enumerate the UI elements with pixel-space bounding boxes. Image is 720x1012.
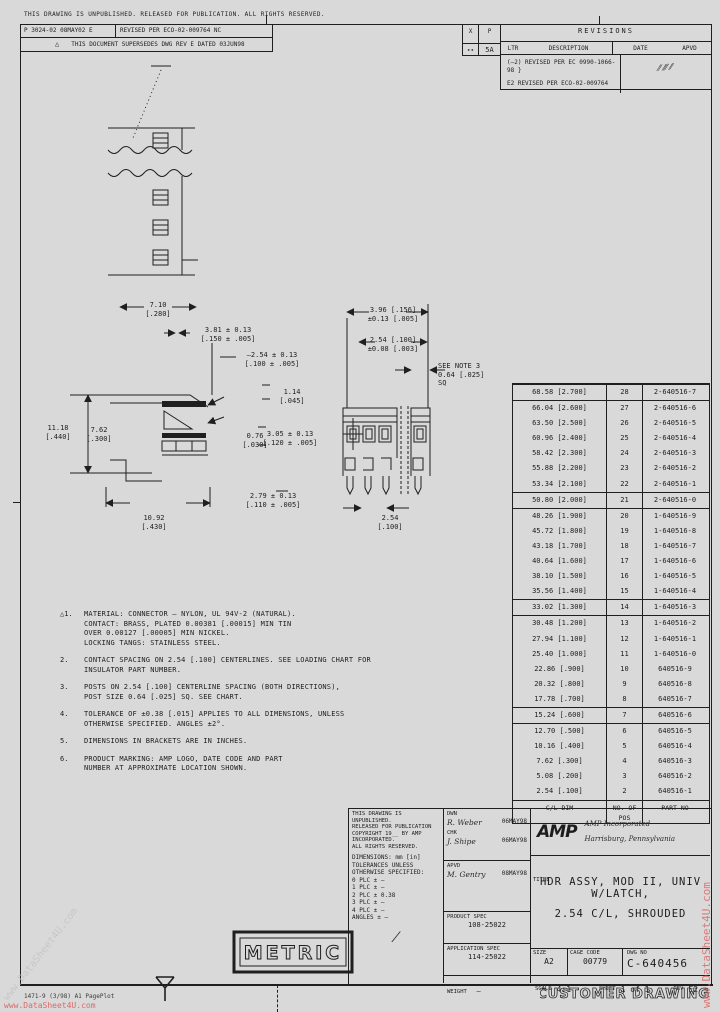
table-row: 22.86 [.900] 10 640516-9	[513, 662, 709, 677]
cell-part-number: 640516-9	[643, 662, 707, 677]
cell-part-number: 640516-7	[643, 692, 707, 707]
dim-label-f2-d7: 11.18 [.440]	[40, 424, 76, 441]
cell-part-number: 1-640516-8	[643, 524, 707, 539]
cell-cl-dim: 20.32 [.800]	[513, 677, 607, 692]
projection-symbol-icon	[152, 974, 178, 1004]
revision-strip-row2: △ THIS DOCUMENT SUPERSEDES DWG REV E DAT…	[20, 37, 273, 52]
cell-positions: 16	[607, 569, 643, 584]
cell-cl-dim: 27.94 [1.100]	[513, 632, 607, 647]
title-block-mid-column: DWN R. Weber 06MAY98 CHK J. Shipe 06MAY9…	[444, 809, 531, 983]
revisions-rows: (—2) REVISED PER EC 0990-1066-98 } E2 RE…	[501, 55, 711, 93]
cell-positions: 5	[607, 739, 643, 754]
title-label: TITLE	[533, 877, 550, 884]
cell-part-number: 640516-5	[643, 724, 707, 739]
notes-list: △1. MATERIAL: CONNECTOR — NYLON, UL 94V-…	[60, 610, 390, 782]
dwg-number-row: SIZE A2 CAGE CODE 00779 DWG NO C-640456	[531, 949, 710, 976]
revision-approval-scribble: ⁄⁄ ⁄⁄⁄ ⁄⁄	[619, 50, 712, 97]
header-body-left	[343, 408, 397, 494]
cell-positions: 17	[607, 554, 643, 569]
fold-mark-top-2	[599, 16, 600, 24]
cell-part-number: 2-640516-1	[643, 477, 707, 492]
product-spec-cell: PRODUCT SPEC 108-25022	[444, 912, 530, 944]
dim-label-f2-d4: 1.14 [.045]	[272, 388, 312, 405]
table-row: 2.54 [.100] 2 640516-1	[513, 784, 709, 799]
revision-strip-desc: REVISED PER ECO-02-009764 NC	[116, 25, 272, 37]
note-number: 2.	[60, 656, 84, 675]
note-text: POSTS ON 2.54 [.100] CENTERLINE SPACING …	[84, 683, 340, 702]
note-item: 3. POSTS ON 2.54 [.100] CENTERLINE SPACI…	[60, 683, 390, 702]
cage-code-value: 00779	[570, 957, 620, 967]
table-row: 40.64 [1.600] 17 1-640516-6	[513, 554, 709, 569]
dim-label-f2-d6: 3.05 ± 0.13 [.120 ± .005]	[262, 430, 318, 447]
fold-mark-bottom	[277, 985, 278, 1012]
cell-cl-dim: 35.56 [1.400]	[513, 584, 607, 599]
cell-part-number: 2-640516-7	[643, 385, 707, 400]
size-label: SIZE	[533, 950, 565, 957]
customer-drawing-stamp: CUSTOMER DRAWING	[540, 984, 712, 1004]
cell-part-number: 640516-4	[643, 739, 707, 754]
cell-part-number: 1-640516-1	[643, 632, 707, 647]
revisions-table: REVISIONS LTR DESCRIPTION DATE APVD (—2)…	[500, 24, 712, 90]
note-number: 5.	[60, 737, 84, 747]
cell-cl-dim: 17.78 [.700]	[513, 692, 607, 707]
cell-positions: 25	[607, 431, 643, 446]
cell-cl-dim: 22.86 [.900]	[513, 662, 607, 677]
cell-part-number: 640516-1	[643, 784, 707, 799]
cell-positions: 9	[607, 677, 643, 692]
note-number: 3.	[60, 683, 84, 702]
watermark-right-edge: www.DataSheet4U.com	[700, 882, 713, 1008]
revision-row-2: E2 REVISED PER ECO-02-009764	[507, 80, 618, 88]
dim-label-f2-d9: 10.92 [.430]	[128, 514, 180, 531]
loading-chart-table: 68.58 [2.700] 28 2-640516-7 66.04 [2.600…	[512, 383, 710, 824]
contact-window-1	[153, 133, 168, 148]
cell-positions: 6	[607, 724, 643, 739]
revisions-title: REVISIONS	[501, 24, 711, 42]
note-item: 4. TOLERANCE OF ±0.38 [.015] APPLIES TO …	[60, 710, 390, 729]
note-number: △1.	[60, 610, 84, 648]
dim-label-f3-d4: 2.54 [.100]	[368, 514, 412, 531]
cell-part-number: 1-640516-3	[643, 600, 707, 615]
table-row: 55.88 [2.200] 23 2-640516-2	[513, 461, 709, 476]
cell-cl-dim: 48.26 [1.900]	[513, 509, 607, 524]
left-column-scribble: ⁄	[352, 930, 440, 946]
apvd-date: 08MAY98	[502, 870, 527, 879]
rev-dist-bottom: ∙∙	[463, 44, 478, 55]
rev-zone-bottom: 5A	[479, 44, 500, 55]
customer-drawing-text: CUSTOMER DRAWING	[540, 987, 710, 1002]
revisions-col-ltr: LTR	[501, 42, 525, 54]
note-number: 6.	[60, 755, 84, 774]
rev-zone-top: P	[479, 25, 500, 44]
cell-cl-dim: 50.80 [2.000]	[513, 493, 607, 508]
cell-positions: 26	[607, 416, 643, 431]
cell-part-number: 1-640516-0	[643, 647, 707, 662]
apvd-cell: APVD M. Gentry 08MAY98	[444, 861, 530, 912]
cell-part-number: 2-640516-6	[643, 401, 707, 416]
cell-positions: 3	[607, 769, 643, 784]
weight-cell: WEIGHT —	[444, 976, 530, 999]
cell-part-number: 1-640516-9	[643, 509, 707, 524]
cell-positions: 7	[607, 708, 643, 723]
dim-label-f2-d2: 3.81 ± 0.13 [.150 ± .005]	[192, 326, 264, 343]
cell-positions: 11	[607, 647, 643, 662]
note-text: CONTACT SPACING ON 2.54 [.100] CENTERLIN…	[84, 656, 371, 675]
break-line-2	[108, 170, 192, 177]
contact-window-2	[153, 190, 168, 205]
table-row: 30.48 [1.200] 13 1-640516-2	[513, 616, 709, 631]
cell-cl-dim: 43.18 [1.700]	[513, 539, 607, 554]
cell-positions: 20	[607, 509, 643, 524]
dwn-chk-cell: DWN R. Weber 06MAY98 CHK J. Shipe 06MAY9…	[444, 809, 530, 861]
cell-cl-dim: 58.42 [2.300]	[513, 446, 607, 461]
dwn-label: DWN	[447, 811, 527, 818]
weight-value: —	[477, 987, 481, 995]
company-name: AMP Incorporated	[585, 820, 675, 829]
dim-label-f3-note: SEE NOTE 3 0.64 [.025] SQ	[438, 362, 496, 388]
table-row: 48.26 [1.900] 20 1-640516-9	[513, 509, 709, 524]
note-text: TOLERANCE OF ±0.38 [.015] APPLIES TO ALL…	[84, 710, 344, 729]
frame-left-line	[20, 24, 21, 985]
revision-strip-ecn: P 3024-02 08MAY02 E	[21, 25, 116, 37]
title-block: THIS DRAWING IS UNPUBLISHED. RELEASED FO…	[348, 808, 712, 985]
watermark-diagonal: www.DataSheet4U.com	[1, 906, 80, 1003]
cell-part-number: 1-640516-2	[643, 616, 707, 631]
application-spec-cell: APPLICATION SPEC 114-25022	[444, 944, 530, 976]
cell-cl-dim: 15.24 [.600]	[513, 708, 607, 723]
cell-positions: 18	[607, 539, 643, 554]
cell-positions: 14	[607, 600, 643, 615]
cell-cl-dim: 2.54 [.100]	[513, 784, 607, 799]
note-number: 4.	[60, 710, 84, 729]
note-item: △1. MATERIAL: CONNECTOR — NYLON, UL 94V-…	[60, 610, 390, 648]
note-item: 2. CONTACT SPACING ON 2.54 [.100] CENTER…	[60, 656, 390, 675]
table-row: 66.04 [2.600] 27 2-640516-6	[513, 401, 709, 416]
table-row: 35.56 [1.400] 15 1-640516-4	[513, 584, 709, 599]
product-spec-value: 108-25022	[447, 921, 527, 930]
table-row: 43.18 [1.700] 18 1-640516-7	[513, 539, 709, 554]
table-row: 7.62 [.300] 4 640516-3	[513, 754, 709, 769]
watermark-bottom-left: www.DataSheet4U.com	[4, 1001, 96, 1010]
table-row: 5.08 [.200] 3 640516-2	[513, 769, 709, 784]
cell-cl-dim: 30.48 [1.200]	[513, 616, 607, 631]
table-row: 25.40 [1.000] 11 1-640516-0	[513, 647, 709, 662]
table-row: 27.94 [1.100] 12 1-640516-1	[513, 632, 709, 647]
cell-positions: 4	[607, 754, 643, 769]
note-item: 6. PRODUCT MARKING: AMP LOGO, DATE CODE …	[60, 755, 390, 774]
contact-window-4	[153, 250, 168, 265]
cell-part-number: 2-640516-0	[643, 493, 707, 508]
table-row: 33.02 [1.300] 14 1-640516-3	[513, 599, 709, 616]
header-body-right	[411, 408, 430, 494]
cell-cl-dim: 25.40 [1.000]	[513, 647, 607, 662]
dim-label-f2-d1: 7.10 [.280]	[128, 301, 188, 318]
table-row: 15.24 [.600] 7 640516-6	[513, 707, 709, 724]
table-row: 45.72 [1.800] 19 1-640516-8	[513, 524, 709, 539]
dim-label-f2-d3: —2.54 ± 0.13 [.100 ± .005]	[238, 351, 306, 368]
drawing-sheet: { "page": { "top_legal": "THIS DRAWING I…	[0, 0, 720, 1012]
cell-cl-dim: 63.50 [2.500]	[513, 416, 607, 431]
revision-strip-row1: P 3024-02 08MAY02 E REVISED PER ECO-02-0…	[20, 24, 273, 38]
metric-stamp-text: METRIC	[244, 942, 343, 964]
table-row: 50.80 [2.000] 21 2-640516-0	[513, 492, 709, 509]
chk-label: CHK	[447, 830, 527, 837]
cell-cl-dim: 12.70 [.500]	[513, 724, 607, 739]
cell-cl-dim: 45.72 [1.800]	[513, 524, 607, 539]
apvd-label: APVD	[447, 863, 527, 870]
cell-part-number: 2-640516-5	[643, 416, 707, 431]
rev-dist-top: X	[463, 25, 478, 44]
cell-positions: 22	[607, 477, 643, 492]
cell-part-number: 640516-8	[643, 677, 707, 692]
cell-positions: 19	[607, 524, 643, 539]
cell-cl-dim: 33.02 [1.300]	[513, 600, 607, 615]
cell-positions: 8	[607, 692, 643, 707]
title-block-right-column: AMP AMP Incorporated Harrisburg, Pennsyl…	[531, 809, 710, 983]
cell-positions: 27	[607, 401, 643, 416]
note-item: 5. DIMENSIONS IN BRACKETS ARE IN INCHES.	[60, 737, 390, 747]
cell-cl-dim: 5.08 [.200]	[513, 769, 607, 784]
figure-side-view	[65, 60, 335, 290]
table-row: 38.10 [1.500] 16 1-640516-5	[513, 569, 709, 584]
cell-cl-dim: 60.96 [2.400]	[513, 431, 607, 446]
cell-part-number: 1-640516-7	[643, 539, 707, 554]
cell-part-number: 1-640516-6	[643, 554, 707, 569]
revision-row-1: (—2) REVISED PER EC 0990-1066-98 }	[507, 59, 618, 74]
title-block-left-column: THIS DRAWING IS UNPUBLISHED. RELEASED FO…	[349, 809, 444, 983]
cell-positions: 2	[607, 784, 643, 799]
tolerance-text: DIMENSIONS: mm [in] TOLERANCES UNLESS OT…	[352, 854, 440, 922]
cell-part-number: 2-640516-2	[643, 461, 707, 476]
cell-cl-dim: 10.16 [.400]	[513, 739, 607, 754]
cell-cl-dim: 38.10 [1.500]	[513, 569, 607, 584]
break-line-1	[108, 147, 192, 154]
dim-label-f2-d8: 7.62 [.300]	[82, 426, 116, 443]
dim-label-f2-d10: 2.79 ± 0.13 [.110 ± .005]	[242, 492, 304, 509]
cell-positions: 12	[607, 632, 643, 647]
legal-text: THIS DRAWING IS UNPUBLISHED. RELEASED FO…	[352, 811, 440, 850]
top-legal-text: THIS DRAWING IS UNPUBLISHED. RELEASED FO…	[24, 11, 444, 19]
table-row: 68.58 [2.700] 28 2-640516-7	[513, 384, 709, 401]
break-lines	[401, 406, 408, 494]
contact-window-3	[153, 220, 168, 235]
amp-logo: AMP	[537, 822, 577, 842]
cell-positions: 15	[607, 584, 643, 599]
company-location: Harrisburg, Pennsylvania	[585, 835, 675, 844]
revisions-col-desc: DESCRIPTION	[525, 42, 613, 54]
revision-flag-icon: △	[55, 40, 59, 49]
dim-label-f3-d2: 2.54 [.100] ±0.08 [.003]	[362, 336, 424, 353]
rev-zone-box: P 5A	[478, 24, 501, 56]
product-spec-label: PRODUCT SPEC	[447, 914, 527, 921]
table-row: 58.42 [2.300] 24 2-640516-3	[513, 446, 709, 461]
application-spec-value: 114-25022	[447, 953, 527, 962]
size-value: A2	[533, 957, 565, 967]
title-cell: TITLE HDR ASSY, MOD II, UNIV W/LATCH, 2.…	[531, 876, 710, 949]
cell-part-number: 2-640516-3	[643, 446, 707, 461]
cell-positions: 23	[607, 461, 643, 476]
revisions-col-date: DATE	[613, 42, 668, 54]
note-text: PRODUCT MARKING: AMP LOGO, DATE CODE AND…	[84, 755, 283, 774]
note-text: DIMENSIONS IN BRACKETS ARE IN INCHES.	[84, 737, 247, 747]
table-row: 53.34 [2.100] 22 2-640516-1	[513, 477, 709, 492]
note-text: MATERIAL: CONNECTOR — NYLON, UL 94V-2 (N…	[84, 610, 296, 648]
dwg-no-label: DWG NO	[627, 950, 706, 957]
cell-part-number: 640516-3	[643, 754, 707, 769]
cell-cl-dim: 40.64 [1.600]	[513, 554, 607, 569]
table-row: 60.96 [2.400] 25 2-640516-4	[513, 431, 709, 446]
cell-cl-dim: 68.58 [2.700]	[513, 385, 607, 400]
cell-positions: 10	[607, 662, 643, 677]
dim-label-f3-d1: 3.96 [.156] ±0.13 [.005]	[362, 306, 424, 323]
cell-cl-dim: 55.88 [2.200]	[513, 461, 607, 476]
cell-part-number: 1-640516-4	[643, 584, 707, 599]
apvd-signature: M. Gentry	[447, 870, 486, 879]
cell-part-number: 2-640516-4	[643, 431, 707, 446]
cell-positions: 28	[607, 385, 643, 400]
cell-part-number: 1-640516-5	[643, 569, 707, 584]
cell-cl-dim: 53.34 [2.100]	[513, 477, 607, 492]
cage-code-label: CAGE CODE	[570, 950, 620, 957]
cell-positions: 24	[607, 446, 643, 461]
drawing-title-line1: HDR ASSY, MOD II, UNIV W/LATCH,	[531, 876, 710, 900]
table-row: 17.78 [.700] 8 640516-7	[513, 692, 709, 707]
drawing-title-line2: 2.54 C/L, SHROUDED	[531, 908, 710, 920]
revision-strip-supersede: THIS DOCUMENT SUPERSEDES DWG REV E DATED…	[71, 41, 244, 49]
table-row: 10.16 [.400] 5 640516-4	[513, 739, 709, 754]
cell-part-number: 640516-2	[643, 769, 707, 784]
table-row: 20.32 [.800] 9 640516-8	[513, 677, 709, 692]
form-number-text: 1471-9 (3/98) A1 PagePlot	[24, 993, 114, 1001]
cell-positions: 21	[607, 493, 643, 508]
metric-stamp: METRIC	[232, 930, 354, 974]
fold-mark-left	[13, 502, 20, 503]
cell-part-number: 640516-6	[643, 708, 707, 723]
rev-dist-box: X ∙∙	[462, 24, 479, 56]
table-row: 63.50 [2.500] 26 2-640516-5	[513, 416, 709, 431]
weight-label: WEIGHT	[447, 989, 467, 996]
company-cell: AMP AMP Incorporated Harrisburg, Pennsyl…	[531, 809, 710, 856]
dwn-date: 06MAY98	[502, 818, 527, 827]
cell-positions: 13	[607, 616, 643, 631]
chk-signature: J. Shipe	[447, 837, 476, 846]
connector-section-body	[110, 395, 224, 481]
dwn-signature: R. Weber	[447, 818, 482, 827]
table-row: 12.70 [.500] 6 640516-5	[513, 724, 709, 739]
dwg-no-value: C-640456	[627, 957, 706, 970]
cell-cl-dim: 66.04 [2.600]	[513, 401, 607, 416]
chk-date: 06MAY98	[502, 837, 527, 846]
application-spec-label: APPLICATION SPEC	[447, 946, 527, 953]
cell-cl-dim: 7.62 [.300]	[513, 754, 607, 769]
